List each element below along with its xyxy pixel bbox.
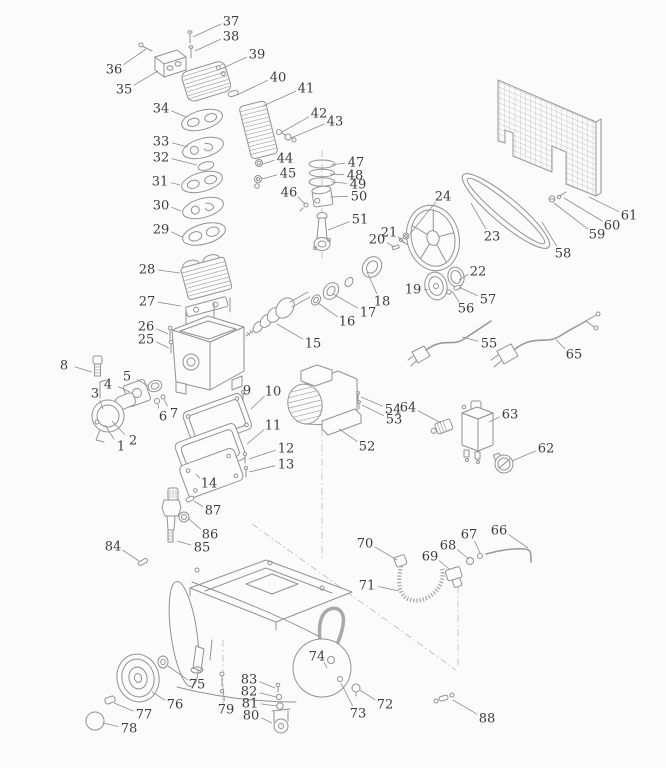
part-number-41: 41 — [298, 82, 315, 97]
part-label-group-31: 31 — [152, 175, 180, 190]
part-number-26: 26 — [138, 320, 155, 335]
part-label-group-16: 16 — [318, 303, 355, 330]
part-label-group-52: 52 — [339, 429, 375, 455]
leader-line-72 — [360, 690, 375, 700]
power-cord-55 — [408, 321, 491, 366]
wheel-76 — [112, 650, 163, 706]
part-number-63: 63 — [502, 408, 519, 423]
leader-line-73 — [341, 683, 353, 706]
valve-plate-30 — [180, 193, 225, 222]
leader-line-82 — [260, 693, 276, 697]
part-number-74: 74 — [309, 650, 326, 665]
motor-group — [284, 365, 361, 435]
diagram-canvas: 1234567891011121314151617181920212223242… — [0, 0, 666, 768]
pressure-gauge-62 — [493, 453, 513, 473]
leader-line-38 — [195, 39, 221, 51]
leader-line-46 — [298, 197, 305, 204]
bolt-83-icon — [276, 683, 280, 692]
part-label-group-39: 39 — [221, 48, 265, 70]
leader-line-51 — [328, 222, 350, 230]
part-number-14: 14 — [201, 477, 218, 492]
part-number-15: 15 — [305, 337, 322, 352]
part-label-group-67: 67 — [461, 528, 480, 554]
outlet-pipe-group — [434, 549, 531, 703]
leader-line-39 — [221, 57, 247, 69]
valve-plate-33 — [180, 133, 225, 162]
leader-line-20 — [387, 242, 394, 247]
power-cord-65 — [491, 312, 600, 367]
part-number-58: 58 — [555, 247, 572, 262]
leader-line-23 — [471, 203, 486, 229]
port-73-icon — [338, 677, 343, 682]
part-number-72: 72 — [377, 698, 394, 713]
leader-line-61 — [589, 197, 619, 212]
part-number-18: 18 — [374, 295, 391, 310]
part-number-68: 68 — [440, 539, 457, 554]
bolt-40-icon — [228, 90, 239, 98]
part-number-10: 10 — [265, 385, 282, 400]
leader-line-42 — [282, 117, 309, 132]
part-label-group-65: 65 — [556, 340, 582, 363]
cylinder-crankcase-group — [168, 252, 244, 401]
pressure-switch-63 — [462, 401, 493, 464]
part-number-75: 75 — [189, 678, 206, 693]
leader-line-26 — [156, 329, 168, 334]
aftercooler-finned — [239, 100, 278, 159]
hub-cap-75-icon — [158, 656, 168, 668]
screw-26-icon — [168, 326, 172, 339]
leader-line-37 — [193, 24, 221, 37]
leader-line-32 — [172, 159, 197, 165]
belt-guard-group — [498, 80, 601, 202]
part-number-30: 30 — [153, 199, 170, 214]
part-number-16: 16 — [339, 315, 356, 330]
guard-screw-59-icon — [549, 196, 555, 202]
part-number-73: 73 — [350, 707, 367, 722]
leader-line-81 — [261, 704, 277, 706]
leader-line-41 — [263, 91, 296, 106]
part-number-43: 43 — [327, 115, 344, 130]
part-label-group-58: 58 — [542, 222, 571, 262]
hose-fitting — [394, 554, 408, 567]
outlet-tube-66 — [486, 549, 531, 562]
tank-platform — [190, 560, 352, 630]
part-label-group-78: 78 — [103, 722, 137, 737]
fitting-43-icon — [285, 134, 296, 142]
leader-line-50 — [330, 196, 348, 197]
leader-line-69 — [439, 561, 449, 570]
leader-line-25 — [156, 342, 169, 348]
leader-line-27 — [158, 302, 181, 306]
part-number-19: 19 — [405, 283, 422, 298]
part-number-32: 32 — [153, 151, 170, 166]
part-label-group-12: 12 — [249, 442, 294, 460]
leader-line-19 — [424, 290, 428, 291]
leader-line-85 — [177, 541, 191, 545]
leader-line-12 — [249, 450, 276, 459]
leader-line-54 — [361, 397, 383, 406]
circlip-44-icon — [256, 160, 263, 167]
tee-fitting-69 — [445, 566, 465, 589]
part-label-group-85: 85 — [177, 541, 210, 556]
gasket-29 — [180, 219, 228, 250]
part-number-2: 2 — [129, 434, 137, 449]
leader-line-10 — [251, 396, 265, 409]
leader-line-8 — [75, 367, 92, 372]
fitting-88-icon — [434, 693, 454, 703]
part-number-85: 85 — [194, 541, 211, 556]
part-number-3: 3 — [91, 387, 99, 402]
part-number-38: 38 — [223, 30, 240, 45]
part-label-group-10: 10 — [251, 385, 281, 410]
leader-line-29 — [171, 232, 182, 237]
caster-group — [272, 683, 290, 733]
part-label-group-40: 40 — [237, 71, 286, 96]
part-number-28: 28 — [139, 263, 156, 278]
crankcase — [172, 298, 244, 394]
part-number-29: 29 — [153, 223, 170, 238]
part-label-group-36: 36 — [106, 49, 146, 78]
gasket-32 — [197, 160, 215, 172]
bolt-13-icon — [244, 466, 247, 477]
part-label-group-64: 64 — [400, 401, 441, 424]
part-number-36: 36 — [106, 63, 123, 78]
part-label-group-27: 27 — [139, 295, 181, 310]
part-number-35: 35 — [116, 83, 133, 98]
part-number-62: 62 — [538, 442, 555, 457]
part-number-45: 45 — [280, 167, 297, 182]
part-label-group-77: 77 — [114, 703, 152, 723]
screw-38-icon — [189, 46, 193, 58]
leader-line-62 — [512, 451, 536, 461]
part-number-8: 8 — [60, 359, 68, 374]
part-label-group-23: 23 — [471, 203, 500, 245]
washer-7-icon — [161, 395, 165, 399]
part-number-39: 39 — [249, 48, 266, 63]
part-label-group-62: 62 — [512, 442, 554, 462]
part-number-44: 44 — [277, 152, 294, 167]
part-label-group-83: 83 — [241, 673, 275, 689]
leader-line-33 — [172, 143, 188, 147]
washer-81-icon — [277, 703, 283, 709]
unloader-block — [155, 50, 186, 77]
leader-line-84 — [123, 550, 140, 561]
part-label-group-66: 66 — [491, 524, 528, 549]
crankshaft-15 — [246, 292, 310, 336]
part-label-group-59: 59 — [554, 203, 605, 243]
part-number-9: 9 — [243, 384, 251, 399]
part-number-55: 55 — [481, 337, 498, 352]
part-label-group-13: 13 — [249, 458, 294, 473]
fitting-42-icon — [277, 130, 286, 136]
leader-line-48 — [330, 174, 344, 175]
part-number-4: 4 — [104, 378, 112, 393]
part-label-group-26: 26 — [138, 320, 168, 335]
leader-line-36 — [123, 49, 146, 65]
nut-82-icon — [276, 694, 281, 699]
nut-68-icon — [467, 558, 474, 565]
leader-line-16 — [318, 303, 338, 317]
leader-line-43 — [291, 124, 325, 138]
part-number-1: 1 — [117, 440, 125, 455]
part-number-67: 67 — [461, 528, 478, 543]
leader-line-67 — [475, 541, 481, 553]
part-label-group-28: 28 — [139, 263, 180, 278]
leader-line-64 — [418, 411, 441, 424]
washer-6-icon — [155, 399, 160, 404]
caster-80 — [272, 709, 290, 733]
leader-line-77 — [114, 703, 134, 711]
part-label-group-70: 70 — [357, 537, 397, 561]
part-number-5: 5 — [123, 370, 131, 385]
part-number-87: 87 — [205, 504, 222, 519]
leader-line-60 — [564, 198, 602, 221]
leader-line-31 — [171, 183, 180, 185]
part-number-50: 50 — [351, 190, 368, 205]
leader-line-13 — [249, 466, 275, 472]
part-label-group-11: 11 — [247, 419, 281, 445]
part-number-52: 52 — [359, 440, 376, 455]
part-number-37: 37 — [223, 15, 240, 30]
part-label-group-30: 30 — [153, 199, 181, 214]
ferrule-67-icon — [478, 554, 483, 559]
part-number-6: 6 — [159, 410, 167, 425]
part-label-group-87: 87 — [194, 501, 221, 519]
connecting-rod-51 — [314, 213, 331, 251]
part-number-86: 86 — [202, 528, 219, 543]
breather-plug-8 — [93, 356, 102, 376]
part-number-71: 71 — [359, 579, 376, 594]
flexible-hose — [399, 566, 442, 601]
part-number-51: 51 — [352, 213, 369, 228]
regulator-body — [162, 500, 181, 516]
part-number-69: 69 — [422, 550, 439, 565]
motor-screw-53-icon — [358, 401, 361, 409]
washer-78-icon — [86, 712, 104, 730]
part-number-61: 61 — [621, 209, 638, 224]
leader-line-6 — [158, 404, 159, 409]
leader-line-80 — [261, 718, 272, 723]
part-label-group-88: 88 — [453, 700, 495, 727]
part-number-78: 78 — [121, 722, 138, 737]
part-number-79: 79 — [218, 703, 235, 718]
leader-line-17 — [333, 294, 358, 308]
leader-line-7 — [164, 399, 168, 407]
part-label-group-86: 86 — [189, 519, 218, 543]
part-number-64: 64 — [400, 401, 417, 416]
part-label-group-45: 45 — [262, 167, 296, 182]
part-number-42: 42 — [311, 107, 328, 122]
part-label-group-15: 15 — [277, 324, 321, 352]
leader-line-28 — [158, 270, 180, 273]
part-number-84: 84 — [105, 540, 122, 555]
leader-line-40 — [237, 80, 268, 95]
guard-screw-60-icon — [557, 192, 566, 199]
leader-line-47 — [331, 163, 345, 165]
part-label-group-56: 56 — [452, 291, 474, 317]
part-number-46: 46 — [281, 186, 298, 201]
screw-87-icon — [186, 495, 195, 502]
screw-25-icon — [169, 340, 173, 353]
part-number-11: 11 — [265, 419, 282, 434]
part-number-83: 83 — [241, 673, 258, 688]
part-label-group-50: 50 — [330, 190, 367, 205]
leader-line-34 — [171, 111, 186, 117]
leader-line-15 — [277, 324, 303, 339]
leader-line-71 — [378, 587, 399, 592]
part-number-22: 22 — [470, 265, 487, 280]
leader-line-66 — [508, 534, 528, 548]
drain-valve-72-icon — [352, 684, 360, 696]
part-label-group-84: 84 — [105, 540, 139, 562]
part-number-7: 7 — [170, 407, 178, 422]
leader-line-52 — [339, 429, 358, 442]
part-number-21: 21 — [381, 226, 398, 241]
flywheel — [400, 200, 466, 277]
part-number-25: 25 — [138, 333, 155, 348]
leader-line-83 — [259, 682, 275, 688]
cylinder-head-finned — [180, 60, 232, 103]
check-valve-64 — [429, 419, 453, 437]
part-label-group-51: 51 — [328, 213, 368, 231]
part-label-group-42: 42 — [282, 107, 327, 133]
exploded-diagram: 1234567891011121314151617181920212223242… — [0, 0, 666, 768]
part-label-group-33: 33 — [153, 135, 188, 150]
part-number-27: 27 — [139, 295, 156, 310]
part-label-group-9: 9 — [243, 384, 251, 399]
part-number-77: 77 — [136, 708, 153, 723]
part-label-group-55: 55 — [462, 337, 497, 352]
piston-50 — [311, 185, 333, 207]
leader-line-87 — [194, 501, 203, 507]
leader-line-59 — [554, 203, 588, 229]
leader-line-86 — [189, 519, 201, 529]
cylinder-block-finned — [179, 252, 232, 300]
leader-line-45 — [262, 175, 277, 179]
part-number-13: 13 — [278, 458, 295, 473]
leader-line-68 — [457, 549, 469, 559]
leader-line-78 — [103, 723, 118, 727]
part-label-group-8: 8 — [60, 359, 92, 374]
switch-group — [429, 401, 513, 473]
leader-line-44 — [263, 160, 274, 164]
bearing-17-icon — [320, 280, 342, 303]
part-number-24: 24 — [435, 190, 452, 205]
part-label-group-29: 29 — [153, 223, 182, 238]
leader-line-70 — [375, 547, 397, 560]
pin-clip-46-icon — [300, 203, 308, 211]
leader-line-88 — [453, 700, 477, 714]
part-number-31: 31 — [152, 175, 169, 190]
seal-ring-5 — [147, 378, 164, 393]
bolt-84-icon — [138, 558, 149, 566]
valve-plate-34 — [179, 105, 224, 134]
tank-end-cap-74 — [293, 639, 351, 697]
part-label-group-71: 71 — [359, 579, 399, 594]
screw-56-icon — [447, 290, 451, 294]
part-label-group-34: 34 — [153, 102, 186, 118]
part-number-76: 76 — [167, 698, 184, 713]
part-number-65: 65 — [566, 348, 583, 363]
part-number-60: 60 — [604, 219, 621, 234]
leader-line-53 — [362, 405, 384, 416]
leader-line-65 — [556, 340, 565, 349]
part-number-40: 40 — [270, 71, 287, 86]
part-number-33: 33 — [153, 135, 170, 150]
part-label-group-6: 6 — [158, 404, 167, 425]
leader-line-56 — [452, 291, 459, 302]
part-number-57: 57 — [480, 293, 497, 308]
valve-plate-31 — [179, 167, 224, 196]
part-label-group-76: 76 — [152, 692, 183, 713]
part-number-34: 34 — [153, 102, 170, 117]
part-label-group-46: 46 — [281, 186, 305, 205]
part-label-group-25: 25 — [138, 333, 169, 349]
part-number-88: 88 — [479, 712, 496, 727]
leader-line-30 — [172, 207, 182, 211]
part-number-56: 56 — [458, 302, 475, 317]
pin-plug-45-icon — [255, 176, 262, 189]
leader-line-35 — [134, 71, 158, 85]
part-number-23: 23 — [484, 230, 501, 245]
v-belt-23 — [455, 165, 558, 257]
regulator-gauge — [179, 512, 189, 522]
motor-pulley-19 — [422, 270, 450, 302]
leader-line-57 — [459, 287, 478, 296]
part-number-70: 70 — [357, 537, 374, 552]
screw-37-icon — [188, 31, 192, 43]
part-number-66: 66 — [491, 524, 508, 539]
ring-18a-icon — [343, 276, 354, 288]
leader-line-11 — [247, 430, 264, 444]
leader-line-49 — [331, 182, 347, 183]
crankshaft-group — [246, 253, 386, 336]
leader-line-76 — [152, 692, 165, 700]
key-20-icon — [392, 245, 400, 250]
bolt-washer-24-icon — [403, 233, 409, 239]
part-number-12: 12 — [278, 442, 295, 457]
belt-guard-mesh — [498, 80, 601, 196]
part-label-group-79: 79 — [218, 688, 235, 718]
collar-18-icon — [358, 253, 385, 281]
